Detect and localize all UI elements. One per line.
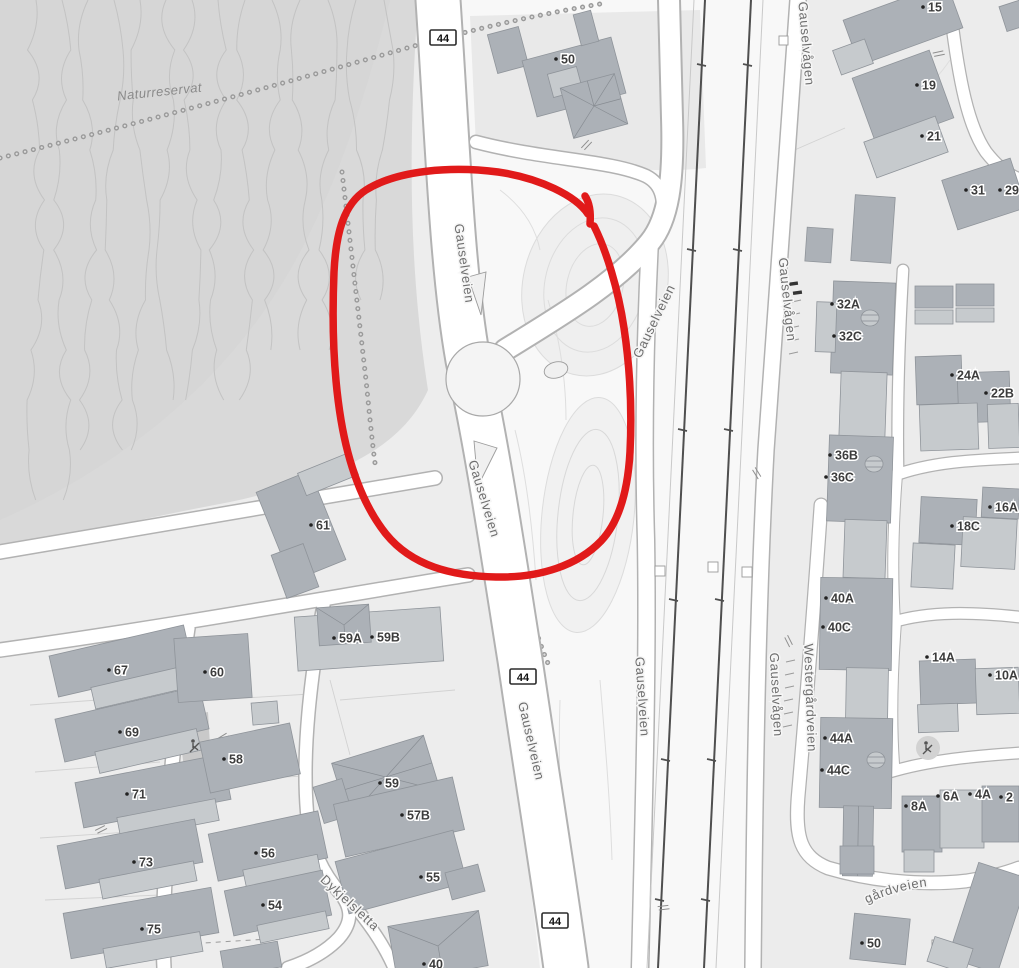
- svg-text:59B: 59B: [377, 631, 400, 645]
- svg-text:57B: 57B: [407, 809, 430, 823]
- svg-text:50: 50: [867, 937, 881, 951]
- svg-text:29: 29: [1005, 184, 1019, 198]
- svg-text:50: 50: [561, 53, 575, 67]
- playground-icon: [916, 736, 940, 760]
- svg-text:18C: 18C: [957, 520, 980, 534]
- square-symbol: [655, 566, 665, 576]
- svg-text:44: 44: [549, 916, 562, 928]
- svg-text:44: 44: [517, 672, 530, 684]
- svg-text:54: 54: [268, 899, 282, 913]
- svg-text:4A: 4A: [975, 788, 991, 802]
- svg-text:24A: 24A: [957, 369, 980, 383]
- svg-text:75: 75: [147, 923, 161, 937]
- svg-text:58: 58: [229, 753, 243, 767]
- svg-text:56: 56: [261, 847, 275, 861]
- svg-text:16A: 16A: [995, 501, 1018, 515]
- svg-text:22B: 22B: [991, 387, 1014, 401]
- svg-text:14A: 14A: [932, 651, 955, 665]
- route-44-marker: 44: [510, 669, 536, 684]
- svg-text:44A: 44A: [830, 732, 853, 746]
- svg-text:8A: 8A: [911, 800, 927, 814]
- svg-text:21: 21: [927, 130, 941, 144]
- route-44-marker: 44: [542, 913, 568, 928]
- svg-text:32A: 32A: [837, 298, 860, 312]
- square-symbol: [779, 36, 788, 45]
- map-graphics: Westergårdveien 50151921312932A32C24A22B…: [0, 0, 1019, 968]
- svg-text:73: 73: [139, 856, 153, 870]
- svg-text:60: 60: [210, 666, 224, 680]
- svg-text:59A: 59A: [339, 632, 362, 646]
- map-canvas[interactable]: Westergårdveien 50151921312932A32C24A22B…: [0, 0, 1019, 968]
- svg-text:44C: 44C: [827, 764, 850, 778]
- svg-text:2: 2: [1006, 791, 1013, 805]
- roundabout-circle: [446, 342, 520, 416]
- svg-text:59: 59: [385, 777, 399, 791]
- svg-text:67: 67: [114, 664, 128, 678]
- square-symbol: [708, 562, 718, 572]
- svg-text:10A: 10A: [995, 669, 1018, 683]
- svg-text:55: 55: [426, 871, 440, 885]
- svg-text:44: 44: [437, 33, 450, 45]
- svg-text:40: 40: [429, 958, 443, 968]
- svg-text:15: 15: [928, 1, 942, 15]
- svg-text:71: 71: [132, 788, 146, 802]
- svg-text:32C: 32C: [839, 330, 862, 344]
- svg-text:36B: 36B: [835, 449, 858, 463]
- svg-text:36C: 36C: [831, 471, 854, 485]
- square-symbol: [742, 567, 752, 577]
- svg-text:40C: 40C: [828, 621, 851, 635]
- route-44-marker: 44: [430, 30, 456, 45]
- svg-text:69: 69: [125, 726, 139, 740]
- svg-text:40A: 40A: [831, 592, 854, 606]
- svg-text:6A: 6A: [943, 790, 959, 804]
- svg-text:31: 31: [971, 184, 985, 198]
- svg-text:61: 61: [316, 519, 330, 533]
- svg-text:19: 19: [922, 79, 936, 93]
